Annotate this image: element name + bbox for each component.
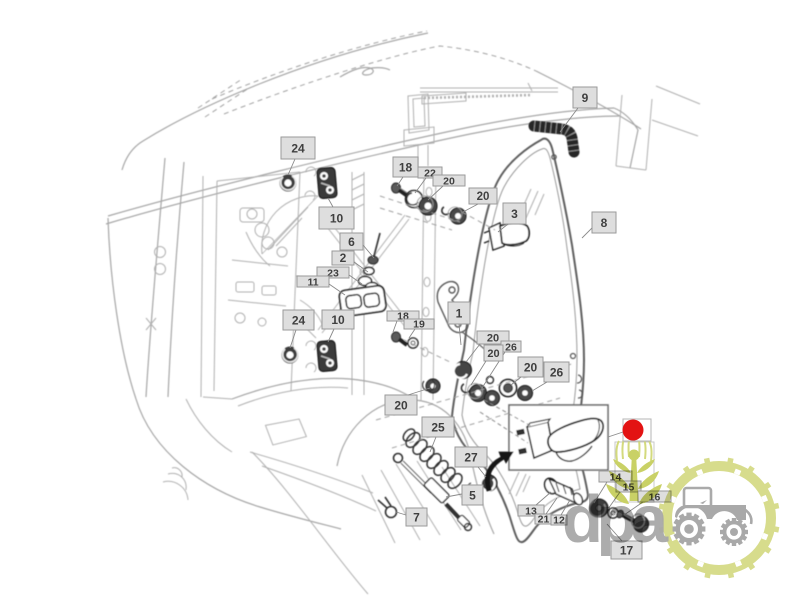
- svg-text:20: 20: [394, 399, 408, 413]
- svg-text:2: 2: [340, 251, 347, 265]
- svg-text:dpa: dpa: [562, 482, 669, 557]
- svg-text:20: 20: [477, 191, 490, 203]
- svg-text:3: 3: [511, 207, 518, 221]
- svg-text:27: 27: [464, 451, 478, 465]
- svg-text:25: 25: [431, 421, 445, 435]
- svg-text:10: 10: [331, 313, 345, 327]
- svg-text:5: 5: [469, 489, 476, 503]
- svg-text:10: 10: [330, 212, 344, 226]
- svg-text:24: 24: [292, 314, 306, 328]
- svg-text:11: 11: [307, 277, 318, 289]
- svg-text:20: 20: [487, 348, 499, 360]
- svg-text:8: 8: [601, 216, 608, 230]
- svg-text:26: 26: [550, 366, 564, 380]
- svg-text:7: 7: [413, 511, 420, 525]
- svg-text:18: 18: [399, 161, 413, 175]
- svg-text:21: 21: [538, 514, 550, 526]
- svg-text:6: 6: [348, 235, 355, 249]
- svg-text:26: 26: [505, 342, 517, 354]
- svg-text:24: 24: [291, 142, 305, 156]
- svg-text:9: 9: [582, 91, 589, 105]
- svg-text:20: 20: [487, 333, 499, 345]
- svg-text:19: 19: [413, 319, 425, 331]
- svg-text:20: 20: [524, 361, 538, 375]
- svg-text:1: 1: [456, 307, 463, 321]
- svg-text:20: 20: [443, 176, 455, 188]
